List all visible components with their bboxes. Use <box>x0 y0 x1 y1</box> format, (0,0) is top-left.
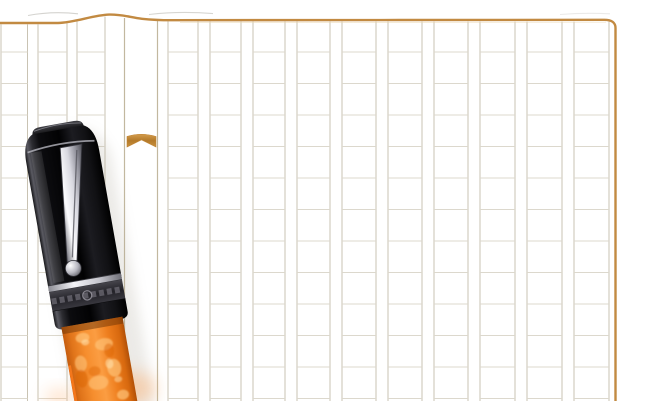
photo-canvas <box>0 0 650 401</box>
scene-image <box>0 0 650 401</box>
